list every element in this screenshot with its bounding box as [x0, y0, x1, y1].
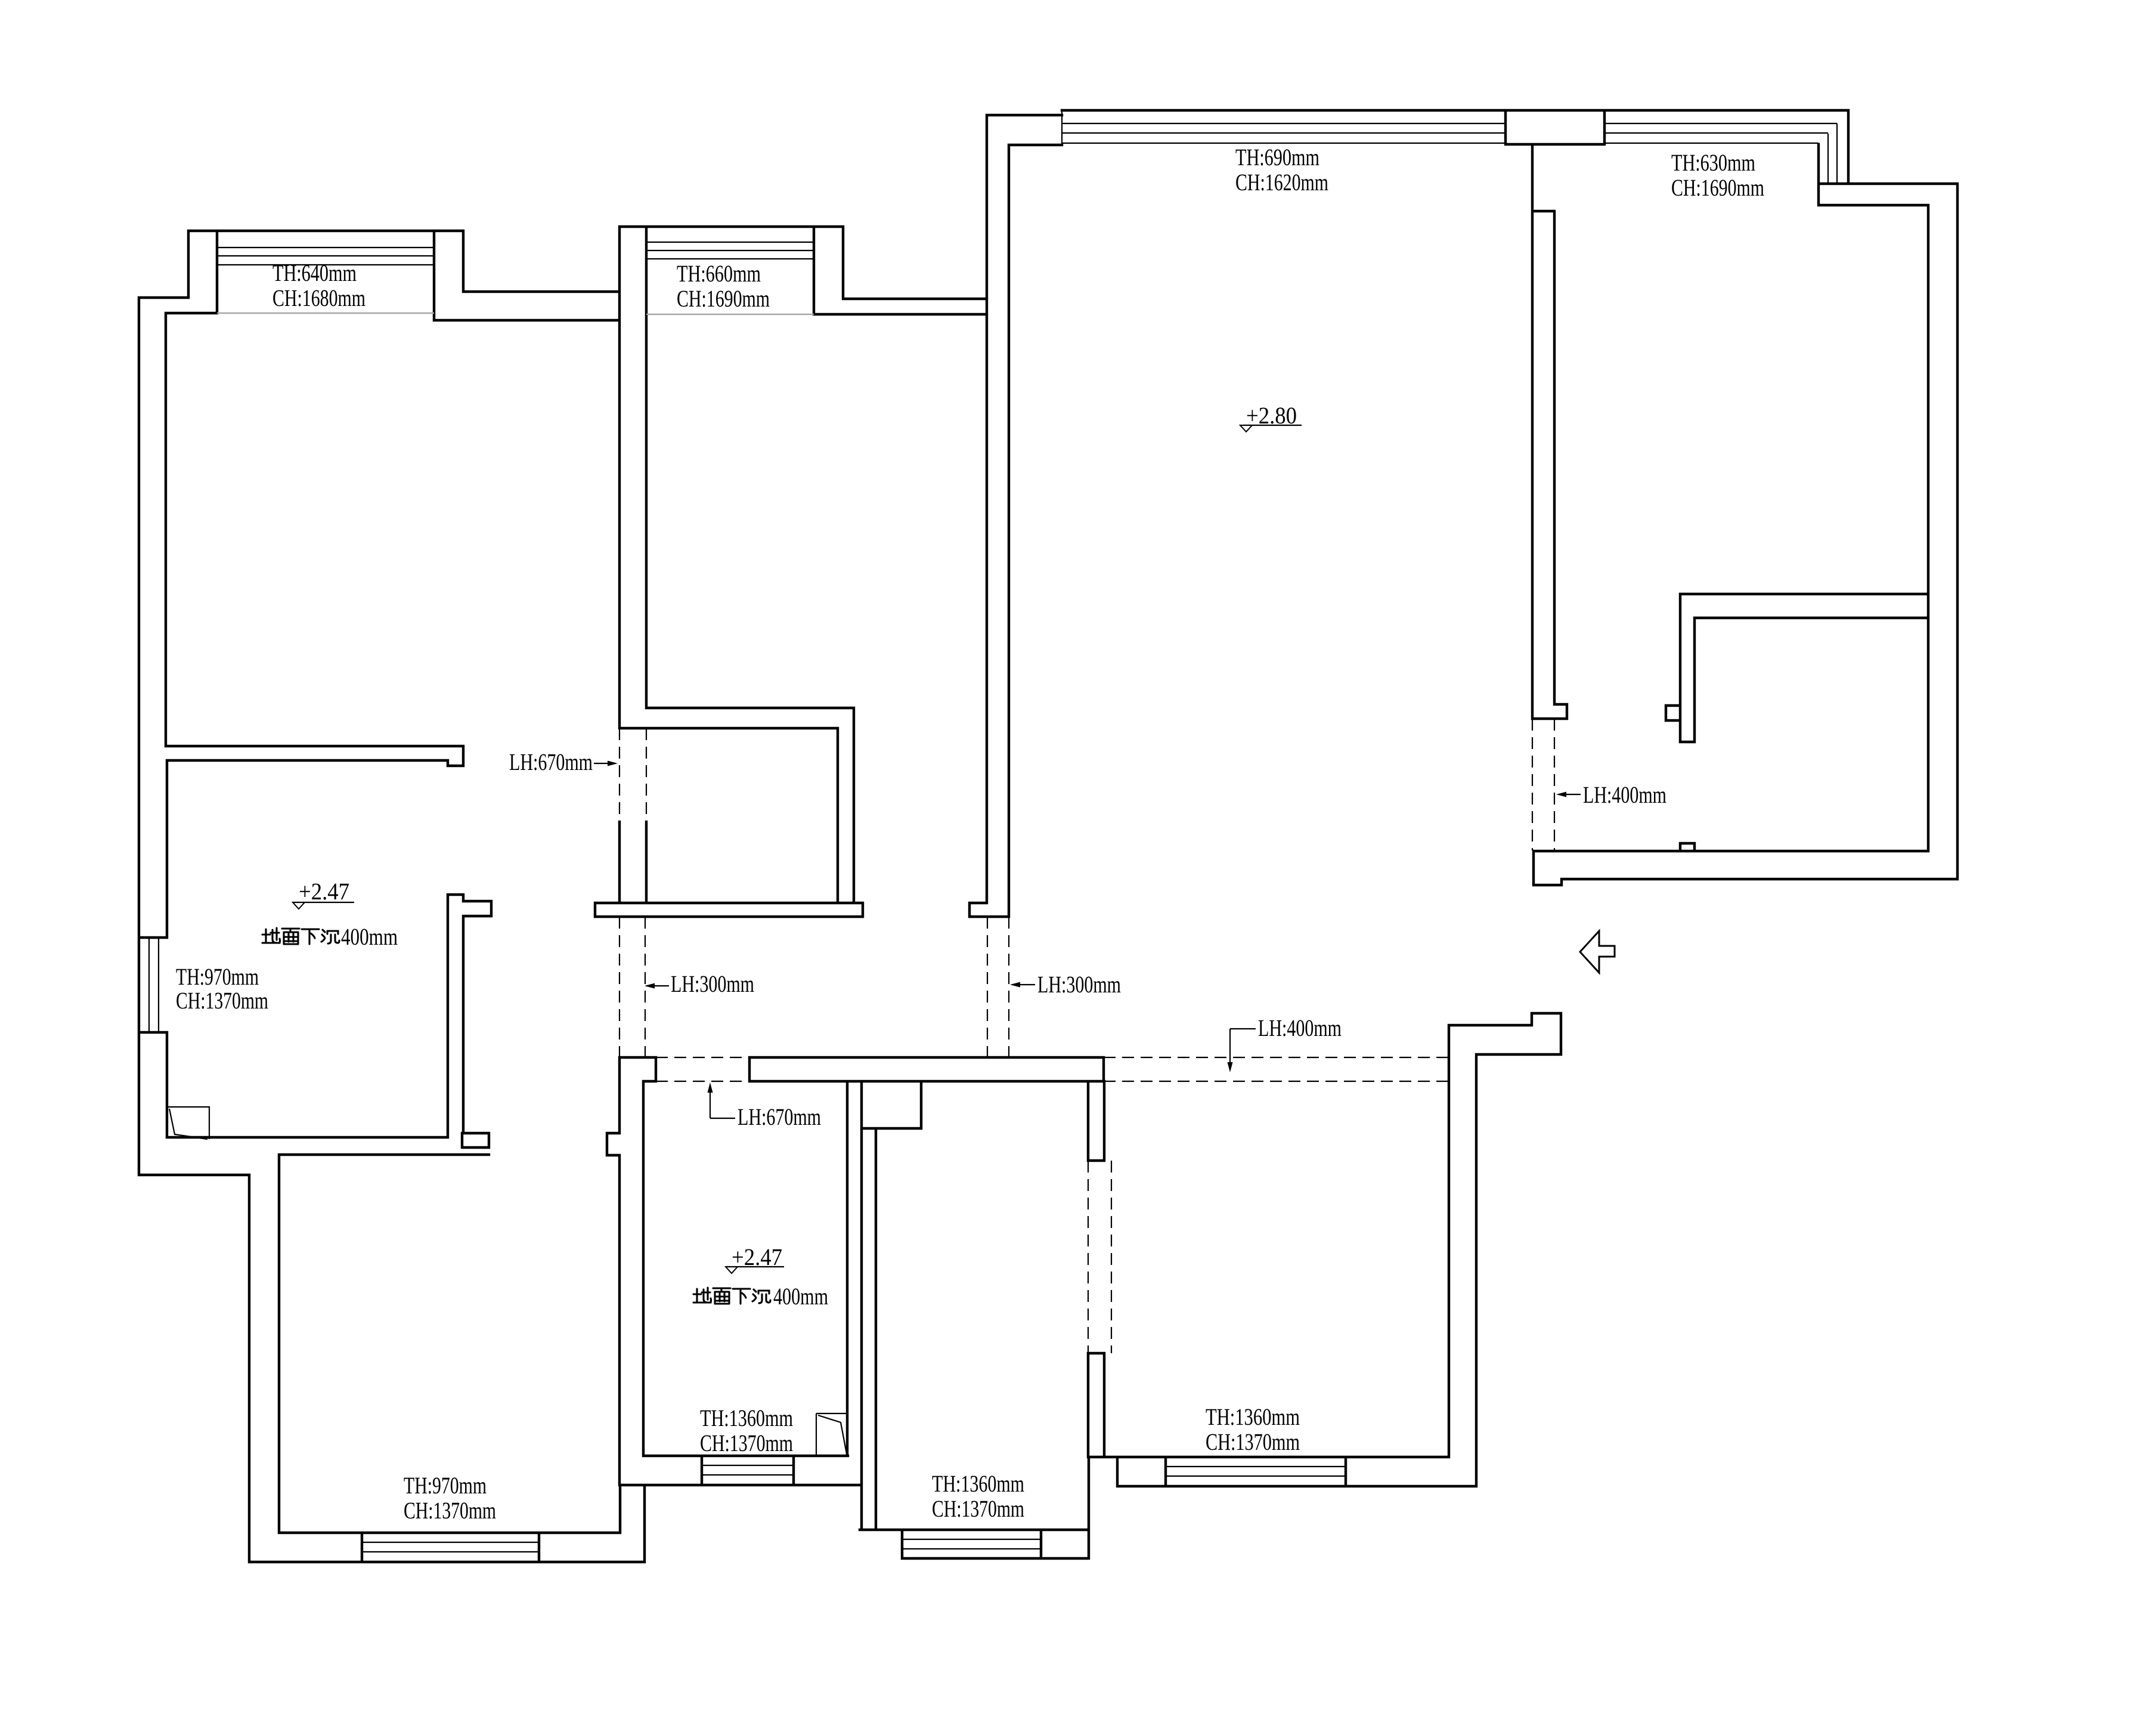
svg-text:CH:1690mm: CH:1690mm [677, 285, 770, 312]
svg-text:TH:630mm: TH:630mm [1671, 149, 1755, 176]
svg-text:CH:1690mm: CH:1690mm [1671, 174, 1764, 201]
svg-text:TH:970mm: TH:970mm [176, 963, 259, 990]
svg-text:LH:300mm: LH:300mm [1037, 971, 1121, 998]
svg-text:CH:1370mm: CH:1370mm [1206, 1428, 1300, 1455]
svg-text:+2.47: +2.47 [299, 878, 349, 905]
svg-text:LH:670mm: LH:670mm [738, 1103, 821, 1130]
svg-text:CH:1370mm: CH:1370mm [404, 1497, 496, 1524]
svg-text:LH:400mm: LH:400mm [1583, 781, 1666, 808]
svg-text:400mm: 400mm [341, 923, 398, 950]
svg-text:TH:1360mm: TH:1360mm [932, 1470, 1024, 1497]
svg-text:LH:400mm: LH:400mm [1258, 1014, 1342, 1041]
svg-text:400mm: 400mm [773, 1283, 828, 1310]
svg-text:+2.47: +2.47 [732, 1243, 782, 1270]
svg-text:CH:1680mm: CH:1680mm [272, 284, 365, 311]
svg-text:+2.80: +2.80 [1246, 402, 1297, 429]
svg-text:TH:1360mm: TH:1360mm [1206, 1403, 1300, 1430]
svg-text:TH:970mm: TH:970mm [404, 1472, 487, 1499]
svg-text:CH:1370mm: CH:1370mm [700, 1430, 793, 1456]
svg-text:CH:1370mm: CH:1370mm [176, 987, 268, 1014]
svg-text:CH:1620mm: CH:1620mm [1235, 169, 1328, 196]
svg-text:LH:670mm: LH:670mm [509, 748, 593, 775]
svg-text:TH:1360mm: TH:1360mm [700, 1405, 793, 1431]
svg-text:LH:300mm: LH:300mm [671, 970, 754, 997]
svg-text:CH:1370mm: CH:1370mm [932, 1495, 1024, 1522]
svg-text:TH:660mm: TH:660mm [677, 260, 761, 287]
svg-text:TH:690mm: TH:690mm [1235, 144, 1319, 171]
svg-text:TH:640mm: TH:640mm [272, 259, 357, 286]
